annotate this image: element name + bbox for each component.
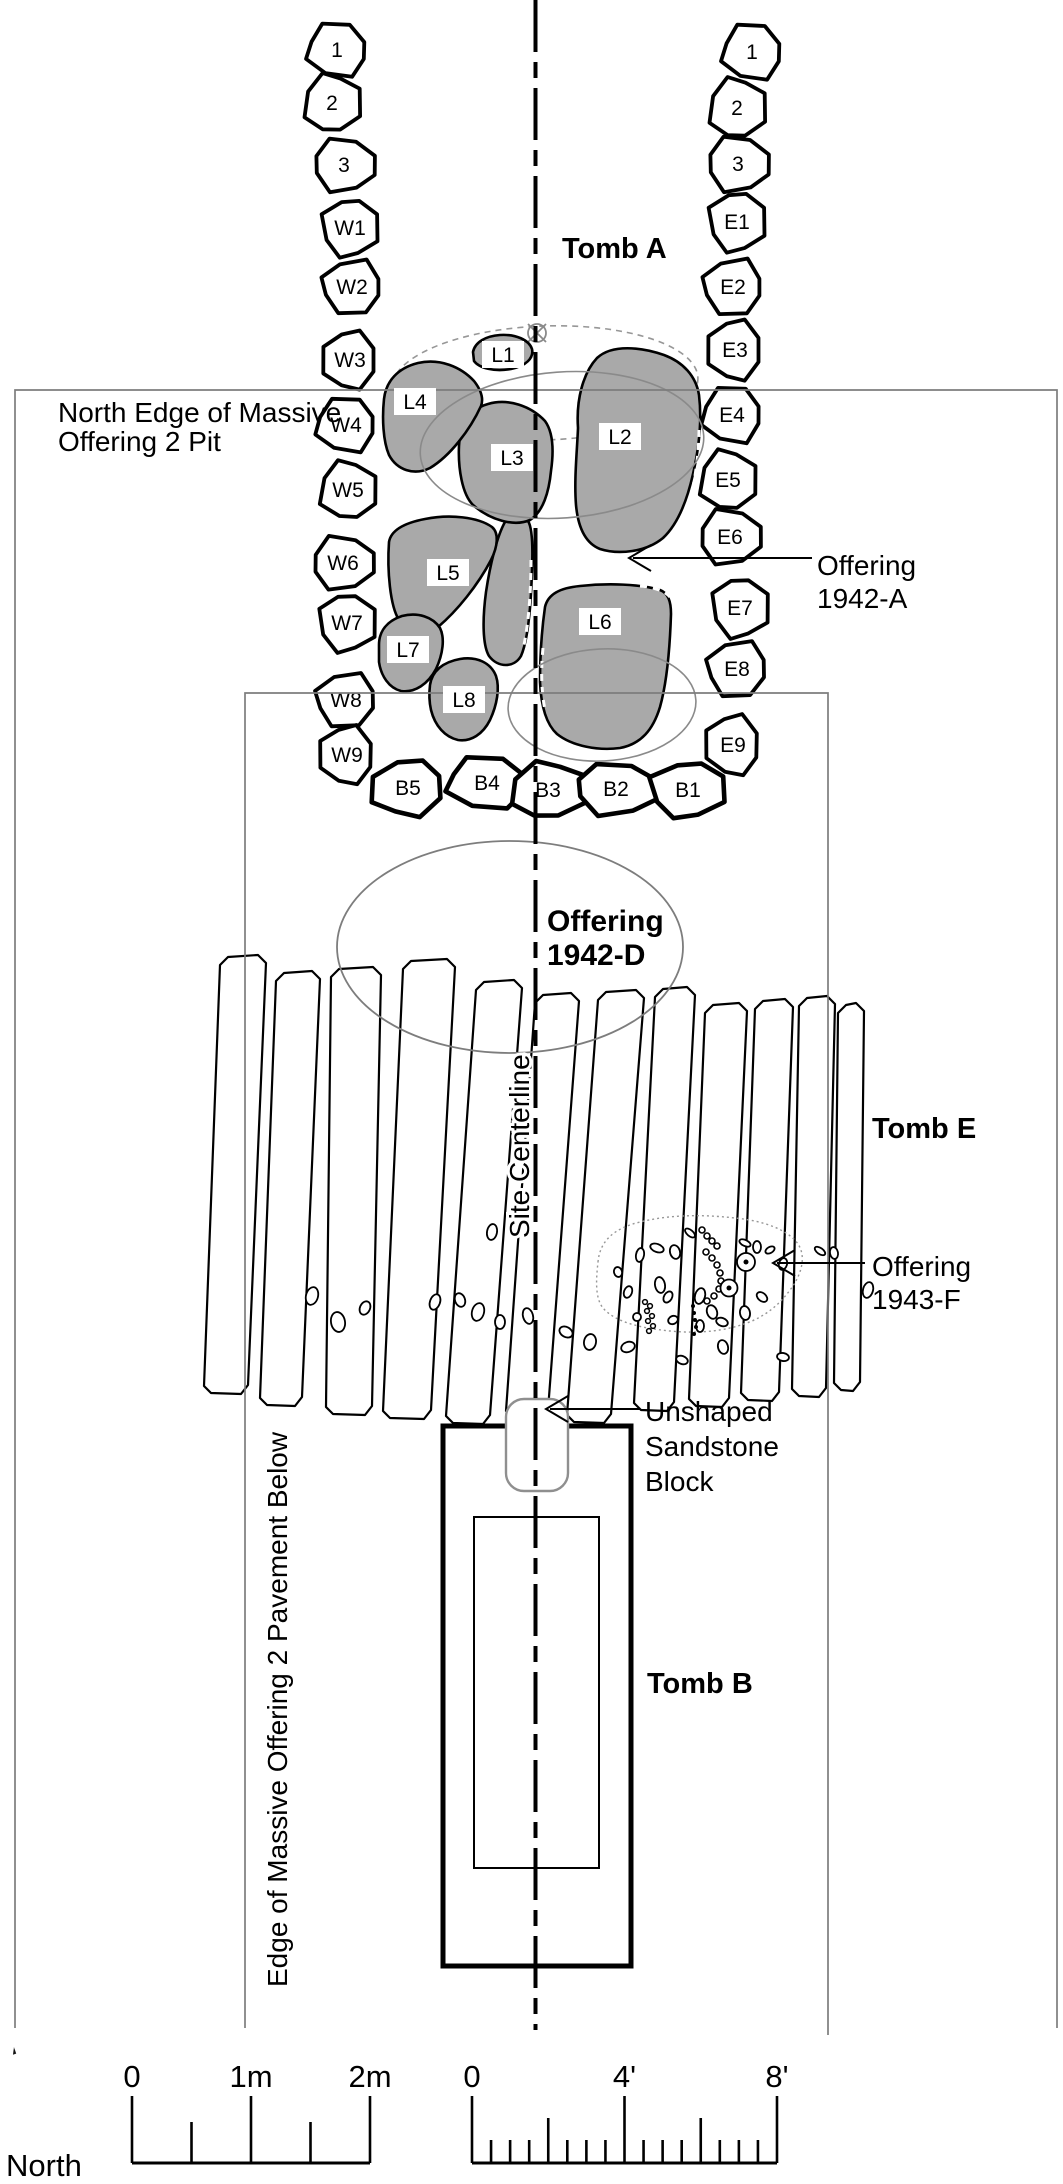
feet-scale-8ft: 8' [765,2059,788,2094]
column-1 [204,955,266,1394]
slab-label-l2: L2 [608,426,631,449]
feet-scale-bar: 04'8' [463,2059,788,2163]
slab-label-l8: L8 [452,689,475,712]
site-plan-canvas: 123W1W2W3W4W5W6W7W8W9123E1E2E3E4E5E6E7E8… [0,0,1063,2179]
pit-edge-label-line2: Offering 2 Pit [58,426,221,457]
pebble [622,1285,634,1299]
east-row-label-2: 2 [731,97,743,120]
offering-1943f-label-line1: Offering [872,1251,971,1282]
west-row-label-w3: W3 [334,349,366,372]
meter-scale-1m: 1m [229,2059,272,2094]
column-12 [834,1003,864,1391]
pebble [633,1313,641,1321]
column-7 [567,990,644,1423]
west-row-label-2: 2 [326,92,338,115]
column-3 [326,967,381,1415]
pebble [683,1227,696,1239]
east-row-label-e8: E8 [724,658,750,681]
pebble [753,1241,761,1253]
sandstone-label-line1: Unshaped [645,1396,773,1427]
pavement-edge-label: Edge of Massive Offering 2 Pavement Belo… [262,1431,293,1987]
bottom-row-label-b3: B3 [535,779,561,802]
tomb-a-label: Tomb A [562,233,667,265]
east-row-label-e1: E1 [724,211,750,234]
tomb-e-label: Tomb E [872,1113,976,1145]
offering-1942d-label-line2: 1942-D [547,939,645,972]
bottom-row: B5B4B3B2B1 [372,757,725,818]
pebble [675,1354,689,1366]
west-row-label-1: 1 [331,39,343,62]
column-10 [741,999,793,1401]
bottom-row-label-b5: B5 [395,777,421,800]
slab-label-l6: L6 [588,611,611,634]
offering-1942a-label-line2: 1942-A [817,583,908,614]
column-2 [260,971,320,1406]
east-row-label-e6: E6 [717,526,743,549]
east-row-label-e4: E4 [719,404,745,427]
slab-label-l4: L4 [403,391,427,414]
column-8 [634,987,695,1411]
slab-label-l7: L7 [396,639,419,662]
pebble [495,1315,505,1329]
offering-1942a-label-line1: Offering [817,550,916,581]
west-row-label-w2: W2 [336,276,368,299]
west-row-label-w1: W1 [334,217,366,240]
tomb-b-label: Tomb B [647,1668,753,1700]
west-row-label-w9: W9 [331,744,363,767]
sandstone-label-line3: Block [645,1466,714,1497]
feet-scale-0: 0 [463,2059,480,2094]
north-label: North [6,2148,82,2179]
east-row-label-e3: E3 [722,339,748,362]
bottom-row-label-b4: B4 [474,772,500,795]
bottom-row-label-b1: B1 [675,779,701,802]
west-row-label-3: 3 [338,154,350,177]
slab-label-l3: L3 [500,447,523,470]
west-row-label-w6: W6 [327,552,359,575]
east-row-label-3: 3 [732,153,744,176]
site-plan-figure: 123W1W2W3W4W5W6W7W8W9123E1E2E3E4E5E6E7E8… [0,0,1063,2179]
offering-1943f-label-line2: 1943-F [872,1284,961,1315]
slab-label-l1: L1 [491,344,514,367]
east-row-label-e9: E9 [720,734,746,757]
site-centerline-label: Site Centerline [504,1054,535,1238]
column-4 [383,959,455,1419]
slab-label-l5: L5 [436,562,459,585]
north-arrow: North [3,2047,101,2179]
east-row-label-e2: E2 [720,276,746,299]
east-row-label-e7: E7 [727,597,753,620]
meter-scale-bar: 01m2m [123,2059,391,2163]
west-row-label-w5: W5 [332,479,364,502]
north-arrow-icon [3,2047,101,2149]
west-row-label-w7: W7 [331,612,363,635]
east-row-label-e5: E5 [715,469,741,492]
offering-1942d-label-line1: Offering [547,905,664,938]
east-row-label-1: 1 [746,41,758,64]
sandstone-label-line2: Sandstone [645,1431,779,1462]
meter-scale-0: 0 [123,2059,140,2094]
feet-scale-4ft: 4' [613,2059,636,2094]
pit-edge-label-line1: North Edge of Massive [58,397,341,428]
pebble [620,1340,637,1354]
east-row: 123E1E2E3E4E5E6E7E8E9 [700,25,780,776]
meter-scale-2m: 2m [348,2059,391,2094]
bottom-row-label-b2: B2 [603,778,629,801]
